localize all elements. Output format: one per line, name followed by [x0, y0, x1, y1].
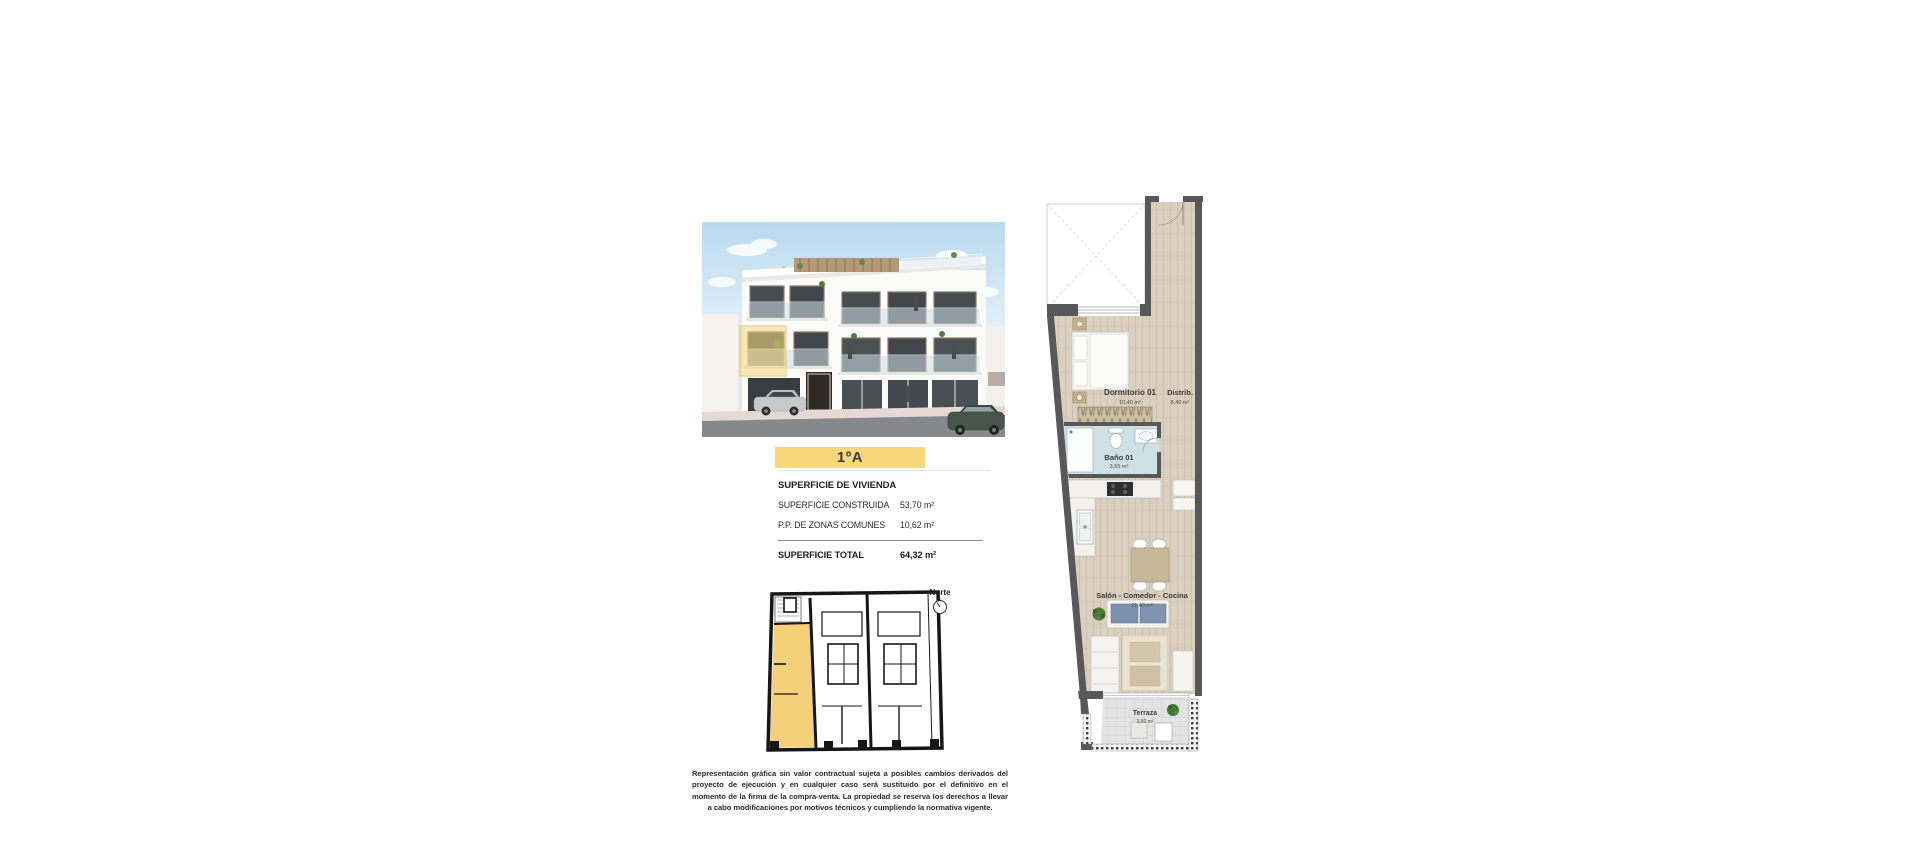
room-label-bano: Baño 01 — [1104, 453, 1133, 462]
room-area-dormitorio: 10,40 m² — [1119, 400, 1141, 406]
floor2-windows — [746, 286, 982, 327]
key-plan-highlighted-unit — [770, 623, 816, 748]
floor-plan-drawing: Dormitorio 01 10,40 m² Distrib. 8,40 m² … — [1045, 196, 1213, 758]
sideboard — [1173, 651, 1193, 691]
neighbor-roof — [988, 372, 1005, 386]
table-divider — [778, 540, 983, 541]
surface-row-value: 10,62 m² — [900, 520, 970, 530]
unit-title-bar: 1ºA — [775, 447, 925, 468]
surface-table: SUPERFICIE DE VIVIENDA SUPERFICIE CONSTR… — [778, 470, 990, 570]
surface-row-label: SUPERFICIE CONSTRUIDA — [778, 500, 900, 510]
unit-title: 1ºA — [837, 449, 863, 466]
brochure-page: 1ºA SUPERFICIE DE VIVIENDA SUPERFICIE CO… — [0, 0, 1920, 850]
wardrobe — [1078, 407, 1152, 424]
room-area-salon: 21,40 m² — [1131, 603, 1153, 609]
surface-table-header: SUPERFICIE DE VIVIENDA — [778, 480, 990, 491]
north-indicator: Norte — [920, 588, 960, 621]
room-label-salon: Salón - Comedor - Cocina — [1096, 591, 1189, 600]
neighbor-building-left — [702, 314, 744, 414]
surface-row-construida: SUPERFICIE CONSTRUIDA 53,70 m² — [778, 500, 990, 510]
surface-total-label: SUPERFICIE TOTAL — [778, 550, 900, 560]
patio-void — [1047, 204, 1145, 308]
surface-row-total: SUPERFICIE TOTAL 64,32 m² — [778, 550, 990, 560]
building-render-image — [702, 222, 1005, 437]
room-label-terraza: Terraza — [1133, 710, 1157, 717]
surface-row-label: P.P. DE ZONAS COMUNES — [778, 520, 900, 530]
surface-row-comunes: P.P. DE ZONAS COMUNES 10,62 m² — [778, 520, 990, 530]
roof-pergola — [794, 258, 899, 272]
rug — [1123, 636, 1167, 690]
room-area-bano: 3,55 m² — [1110, 464, 1129, 470]
room-area-terraza: 3,60 m² — [1137, 719, 1154, 725]
compass-icon — [931, 598, 949, 616]
room-label-dormitorio: Dormitorio 01 — [1104, 388, 1157, 397]
disclaimer-text: Representación gráfica sin valor contrac… — [692, 768, 1008, 814]
room-label-distribuidor: Distrib. — [1167, 388, 1193, 397]
plant — [1093, 608, 1106, 621]
unit-highlight-overlay — [740, 326, 786, 376]
room-area-distribuidor: 8,40 m² — [1171, 400, 1190, 406]
building-render — [702, 222, 1005, 437]
key-plan-stairs — [775, 597, 801, 622]
floor-plan: Dormitorio 01 10,40 m² Distrib. 8,40 m² … — [1045, 196, 1213, 758]
surface-total-value: 64,32 m² — [900, 550, 970, 560]
sofa-2 — [1091, 636, 1119, 696]
north-label: Norte — [920, 588, 960, 597]
neighbor-building-right — [986, 326, 1005, 414]
surface-row-value: 53,70 m² — [900, 500, 970, 510]
